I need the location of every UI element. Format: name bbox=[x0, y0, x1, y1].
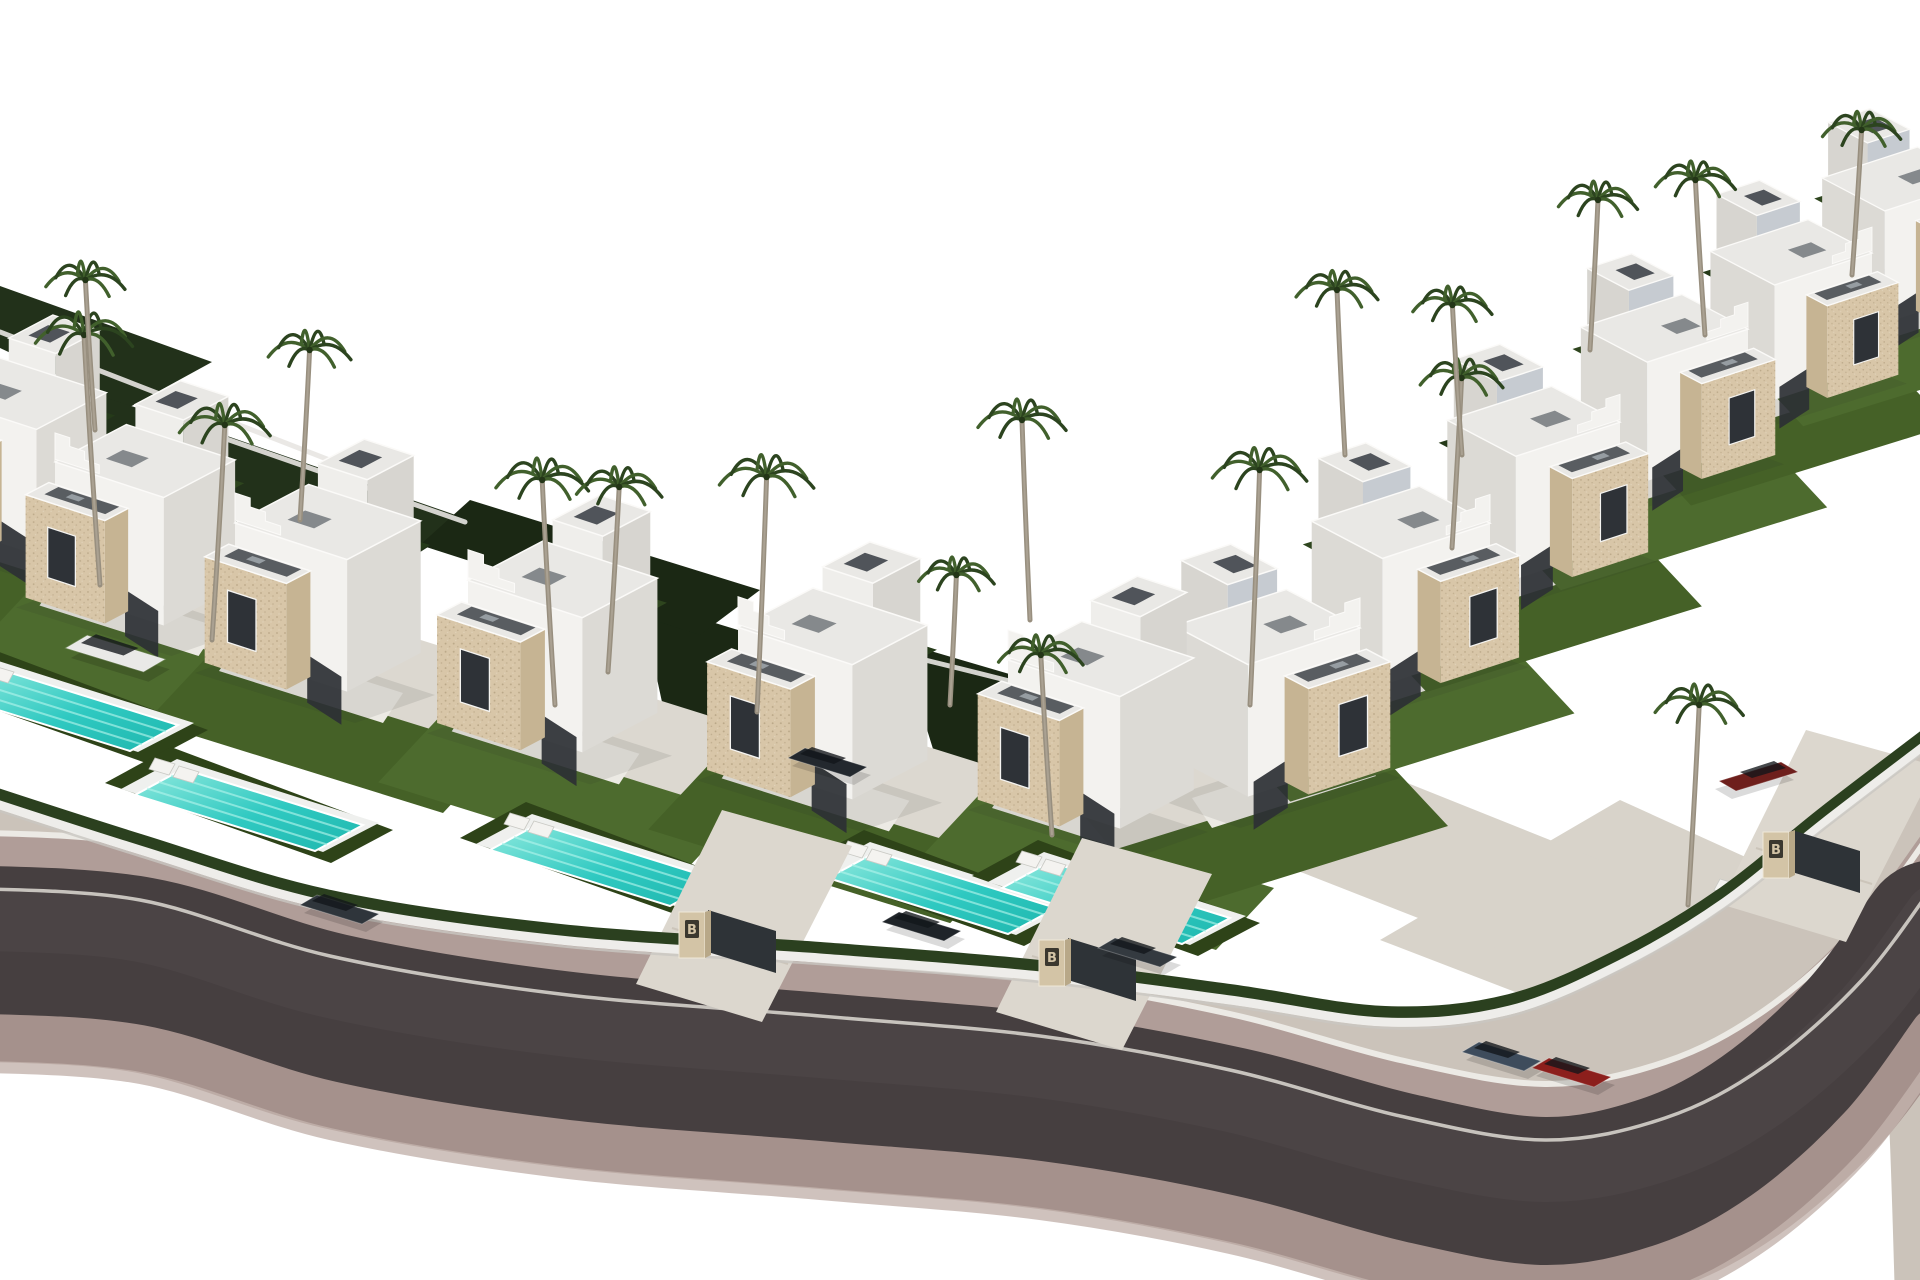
render-shape bbox=[1598, 199, 1622, 216]
render-shape bbox=[1285, 676, 1309, 795]
render-shape bbox=[286, 571, 310, 690]
render-shape bbox=[228, 590, 257, 651]
render-shape bbox=[1059, 708, 1083, 827]
render-shape bbox=[48, 527, 76, 586]
render-shape bbox=[1677, 703, 1699, 722]
render-canvas: BBB bbox=[0, 0, 1920, 1280]
render-shape bbox=[1806, 295, 1827, 398]
render-shape bbox=[0, 440, 2, 553]
render-shape bbox=[1854, 312, 1879, 365]
render-shape bbox=[1337, 289, 1362, 307]
render-shape bbox=[85, 279, 109, 296]
render-part bbox=[1449, 302, 1455, 308]
render-shape bbox=[1789, 830, 1795, 878]
render-shape bbox=[1022, 419, 1048, 438]
render-shape bbox=[520, 629, 544, 750]
render-part bbox=[1696, 702, 1702, 708]
render-part bbox=[1334, 287, 1340, 293]
render-shape bbox=[105, 508, 128, 623]
render-shape bbox=[1260, 469, 1288, 490]
render-shape bbox=[1065, 938, 1071, 986]
render-shape bbox=[1001, 727, 1030, 788]
render-shape bbox=[1699, 704, 1725, 723]
render-shape bbox=[1680, 372, 1702, 479]
render-shape bbox=[767, 476, 795, 497]
render-shape bbox=[1916, 221, 1920, 322]
render-shape bbox=[1339, 695, 1368, 756]
render-part bbox=[953, 572, 959, 578]
render-part bbox=[616, 484, 622, 490]
gate-emblem-letter: B bbox=[1047, 951, 1057, 966]
render-part bbox=[306, 347, 312, 353]
render-shape bbox=[1236, 468, 1260, 488]
render-shape bbox=[1470, 588, 1497, 647]
render-shape bbox=[1317, 288, 1337, 306]
render-shape bbox=[1600, 485, 1627, 542]
render-part bbox=[1019, 417, 1025, 423]
render-shape bbox=[956, 574, 979, 591]
render-part bbox=[1692, 177, 1698, 183]
render-shape bbox=[1452, 304, 1476, 321]
render-part bbox=[82, 277, 88, 283]
render-part bbox=[539, 477, 545, 483]
palm-tree-12 bbox=[1296, 271, 1378, 455]
render-shape bbox=[519, 478, 542, 498]
render-shape bbox=[790, 676, 814, 797]
gate-emblem-letter: B bbox=[1771, 843, 1781, 858]
palm-tree-9 bbox=[978, 399, 1066, 620]
render-part bbox=[1858, 127, 1864, 133]
render-shape bbox=[1550, 467, 1572, 577]
render-part bbox=[1256, 467, 1262, 473]
render-shape bbox=[1418, 569, 1441, 683]
render-part bbox=[1038, 652, 1044, 658]
render-shape bbox=[743, 475, 767, 495]
render-shape bbox=[705, 910, 711, 958]
render-shape bbox=[542, 479, 570, 499]
render-part bbox=[222, 422, 228, 428]
render-shape bbox=[310, 349, 335, 367]
render-part bbox=[1595, 197, 1601, 203]
render-shape bbox=[460, 649, 489, 712]
gate-emblem-letter: B bbox=[687, 923, 697, 938]
render-shape bbox=[1000, 418, 1022, 437]
render-shape bbox=[1729, 390, 1755, 445]
render-part bbox=[763, 474, 769, 480]
villa-development-render: BBB bbox=[0, 0, 1920, 1280]
